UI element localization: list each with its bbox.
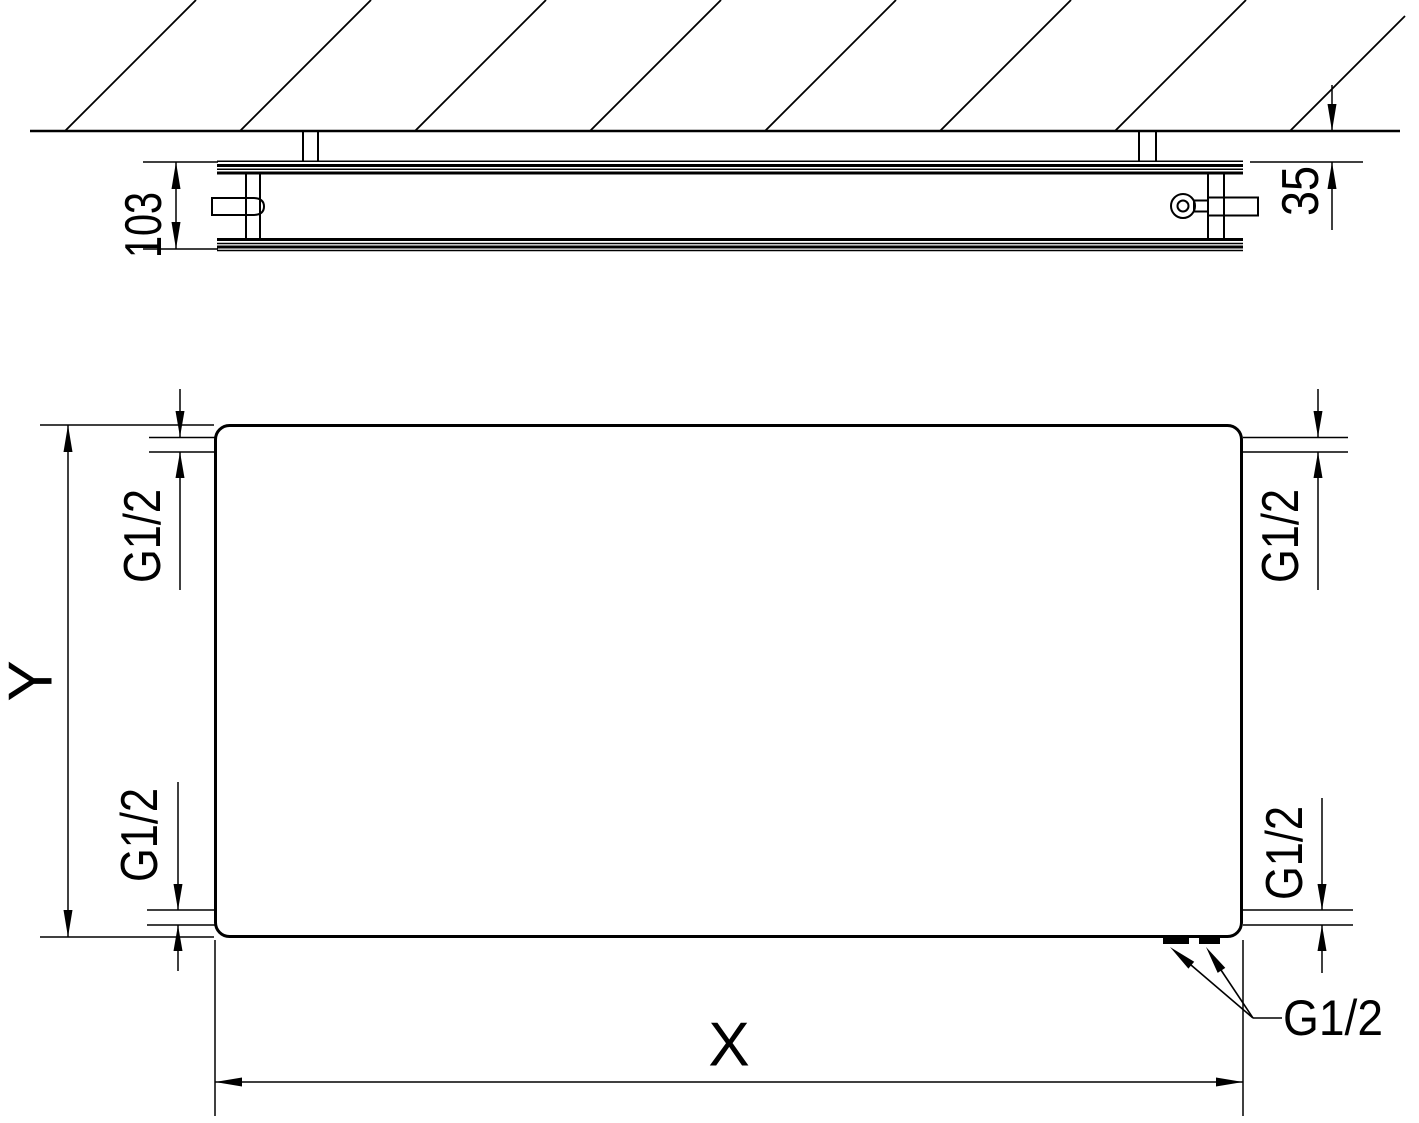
radiator-technical-drawing: 103 35 [0,0,1419,1123]
conn-label-bottom-left: G1/2 [111,788,169,882]
width-dimension-label: X [708,1011,749,1080]
bottom-connections-label: G1/2 [1283,990,1383,1046]
conn-label-bottom-right: G1/2 [1256,806,1314,900]
bottom-connection-tick [1199,938,1220,944]
wall-gap-dimension-label: 35 [1272,166,1330,216]
height-dimension-label: Y [0,660,66,701]
drawing-background [0,0,1419,1123]
depth-dimension-label: 103 [115,192,173,258]
conn-label-top-right: G1/2 [1252,489,1310,583]
bottom-connection-tick [1163,938,1189,944]
conn-label-top-left: G1/2 [114,489,172,583]
